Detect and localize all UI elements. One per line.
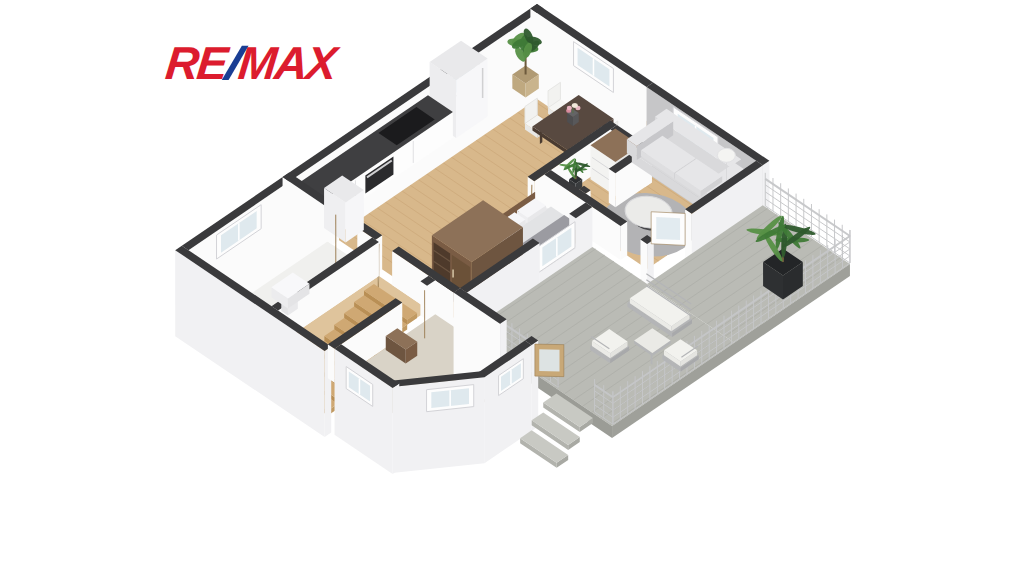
- wall-entrance-sw-se: [393, 383, 400, 473]
- page: RE/MAX: [0, 0, 1024, 576]
- floor-lamp-shade: [717, 148, 735, 162]
- wall-closet-se-sw: [609, 169, 616, 207]
- wall-stair-entrance-b-sw: [328, 344, 335, 382]
- wall-living-sw-se: [621, 222, 628, 260]
- remax-logo: RE/MAX: [163, 36, 338, 90]
- door-terrace-open-glass: [656, 217, 680, 240]
- wall-stair-entrance-a-sw: [420, 281, 427, 319]
- flowers-bloom: [573, 103, 578, 107]
- flowers-bloom: [567, 106, 572, 110]
- wall-stair-entrance-a-se: [427, 280, 435, 320]
- logo-max: MAX: [236, 36, 338, 90]
- door-entry-open-glass: [539, 349, 559, 371]
- logo-re: RE: [163, 36, 229, 90]
- floorplan-3d-render: [0, 0, 1024, 576]
